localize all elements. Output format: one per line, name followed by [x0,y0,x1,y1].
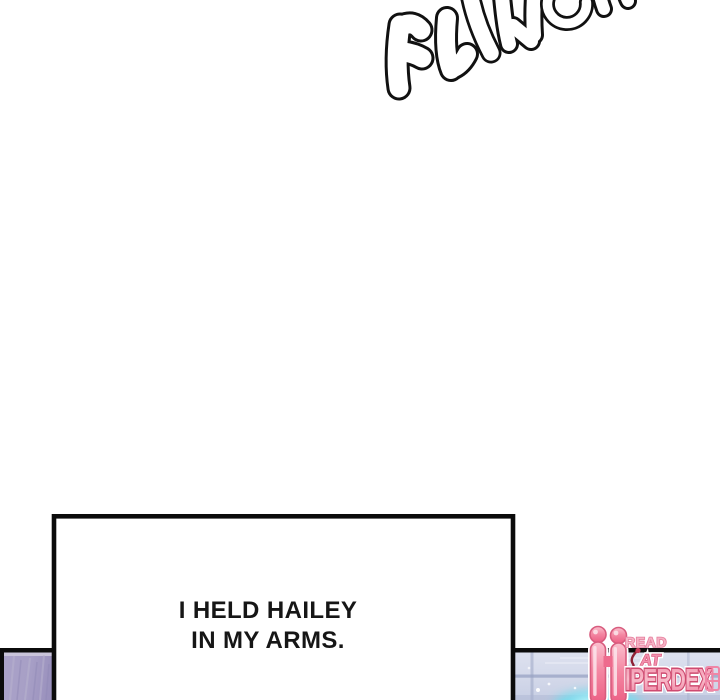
svg-text:IPERDEX: IPERDEX [625,662,712,697]
svg-text:I HELD HAILEY: I HELD HAILEY [179,597,358,624]
svg-text:IN MY ARMS.: IN MY ARMS. [191,627,345,654]
svg-text:READ: READ [625,634,667,650]
